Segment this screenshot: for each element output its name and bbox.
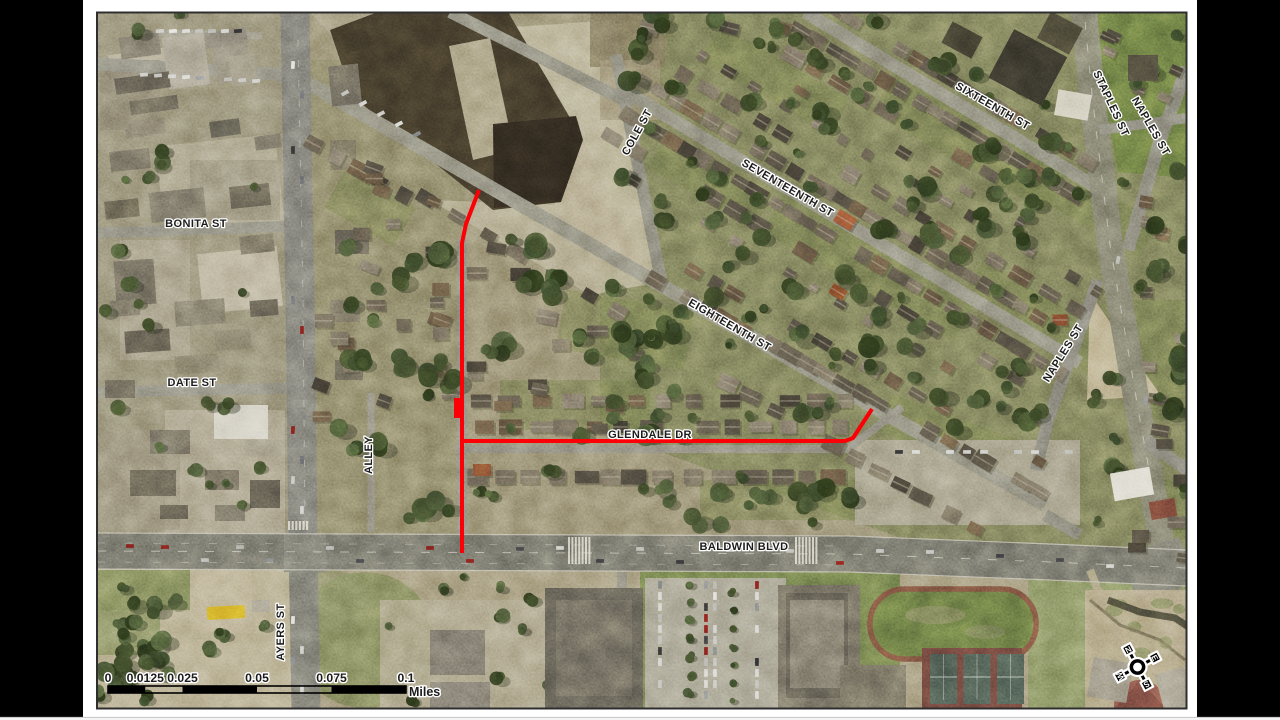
svg-text:AYERS ST: AYERS ST — [275, 603, 287, 660]
svg-text:0.025: 0.025 — [167, 671, 198, 685]
svg-text:GLENDALE DR: GLENDALE DR — [608, 429, 692, 441]
svg-text:0.1: 0.1 — [398, 671, 415, 685]
svg-text:ALLEY: ALLEY — [363, 436, 375, 474]
svg-text:0.05: 0.05 — [245, 671, 269, 685]
svg-text:Miles: Miles — [409, 685, 440, 699]
svg-text:0: 0 — [105, 671, 112, 685]
svg-text:0.075: 0.075 — [316, 671, 347, 685]
svg-text:DATE ST: DATE ST — [167, 377, 216, 389]
svg-text:BALDWIN BLVD: BALDWIN BLVD — [700, 541, 789, 553]
svg-text:BONITA ST: BONITA ST — [165, 218, 227, 230]
svg-text:0.0125: 0.0125 — [127, 671, 164, 685]
